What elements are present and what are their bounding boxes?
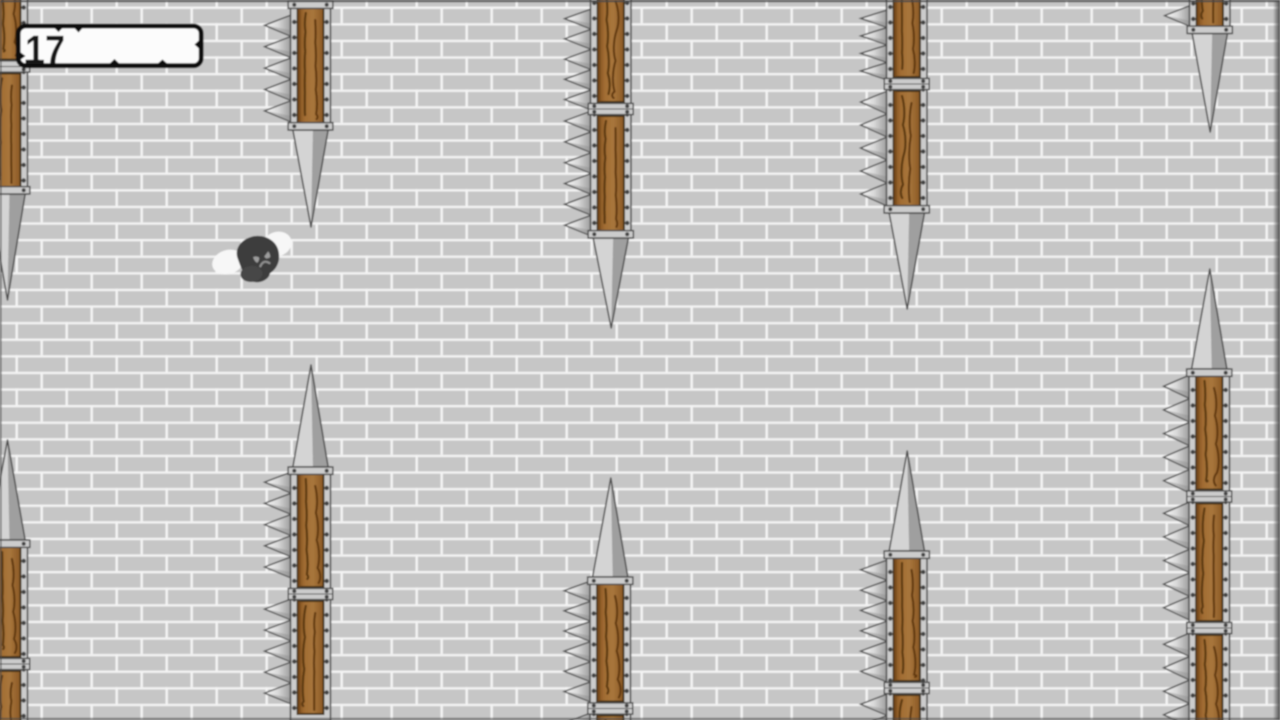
svg-text:17: 17	[25, 27, 65, 73]
